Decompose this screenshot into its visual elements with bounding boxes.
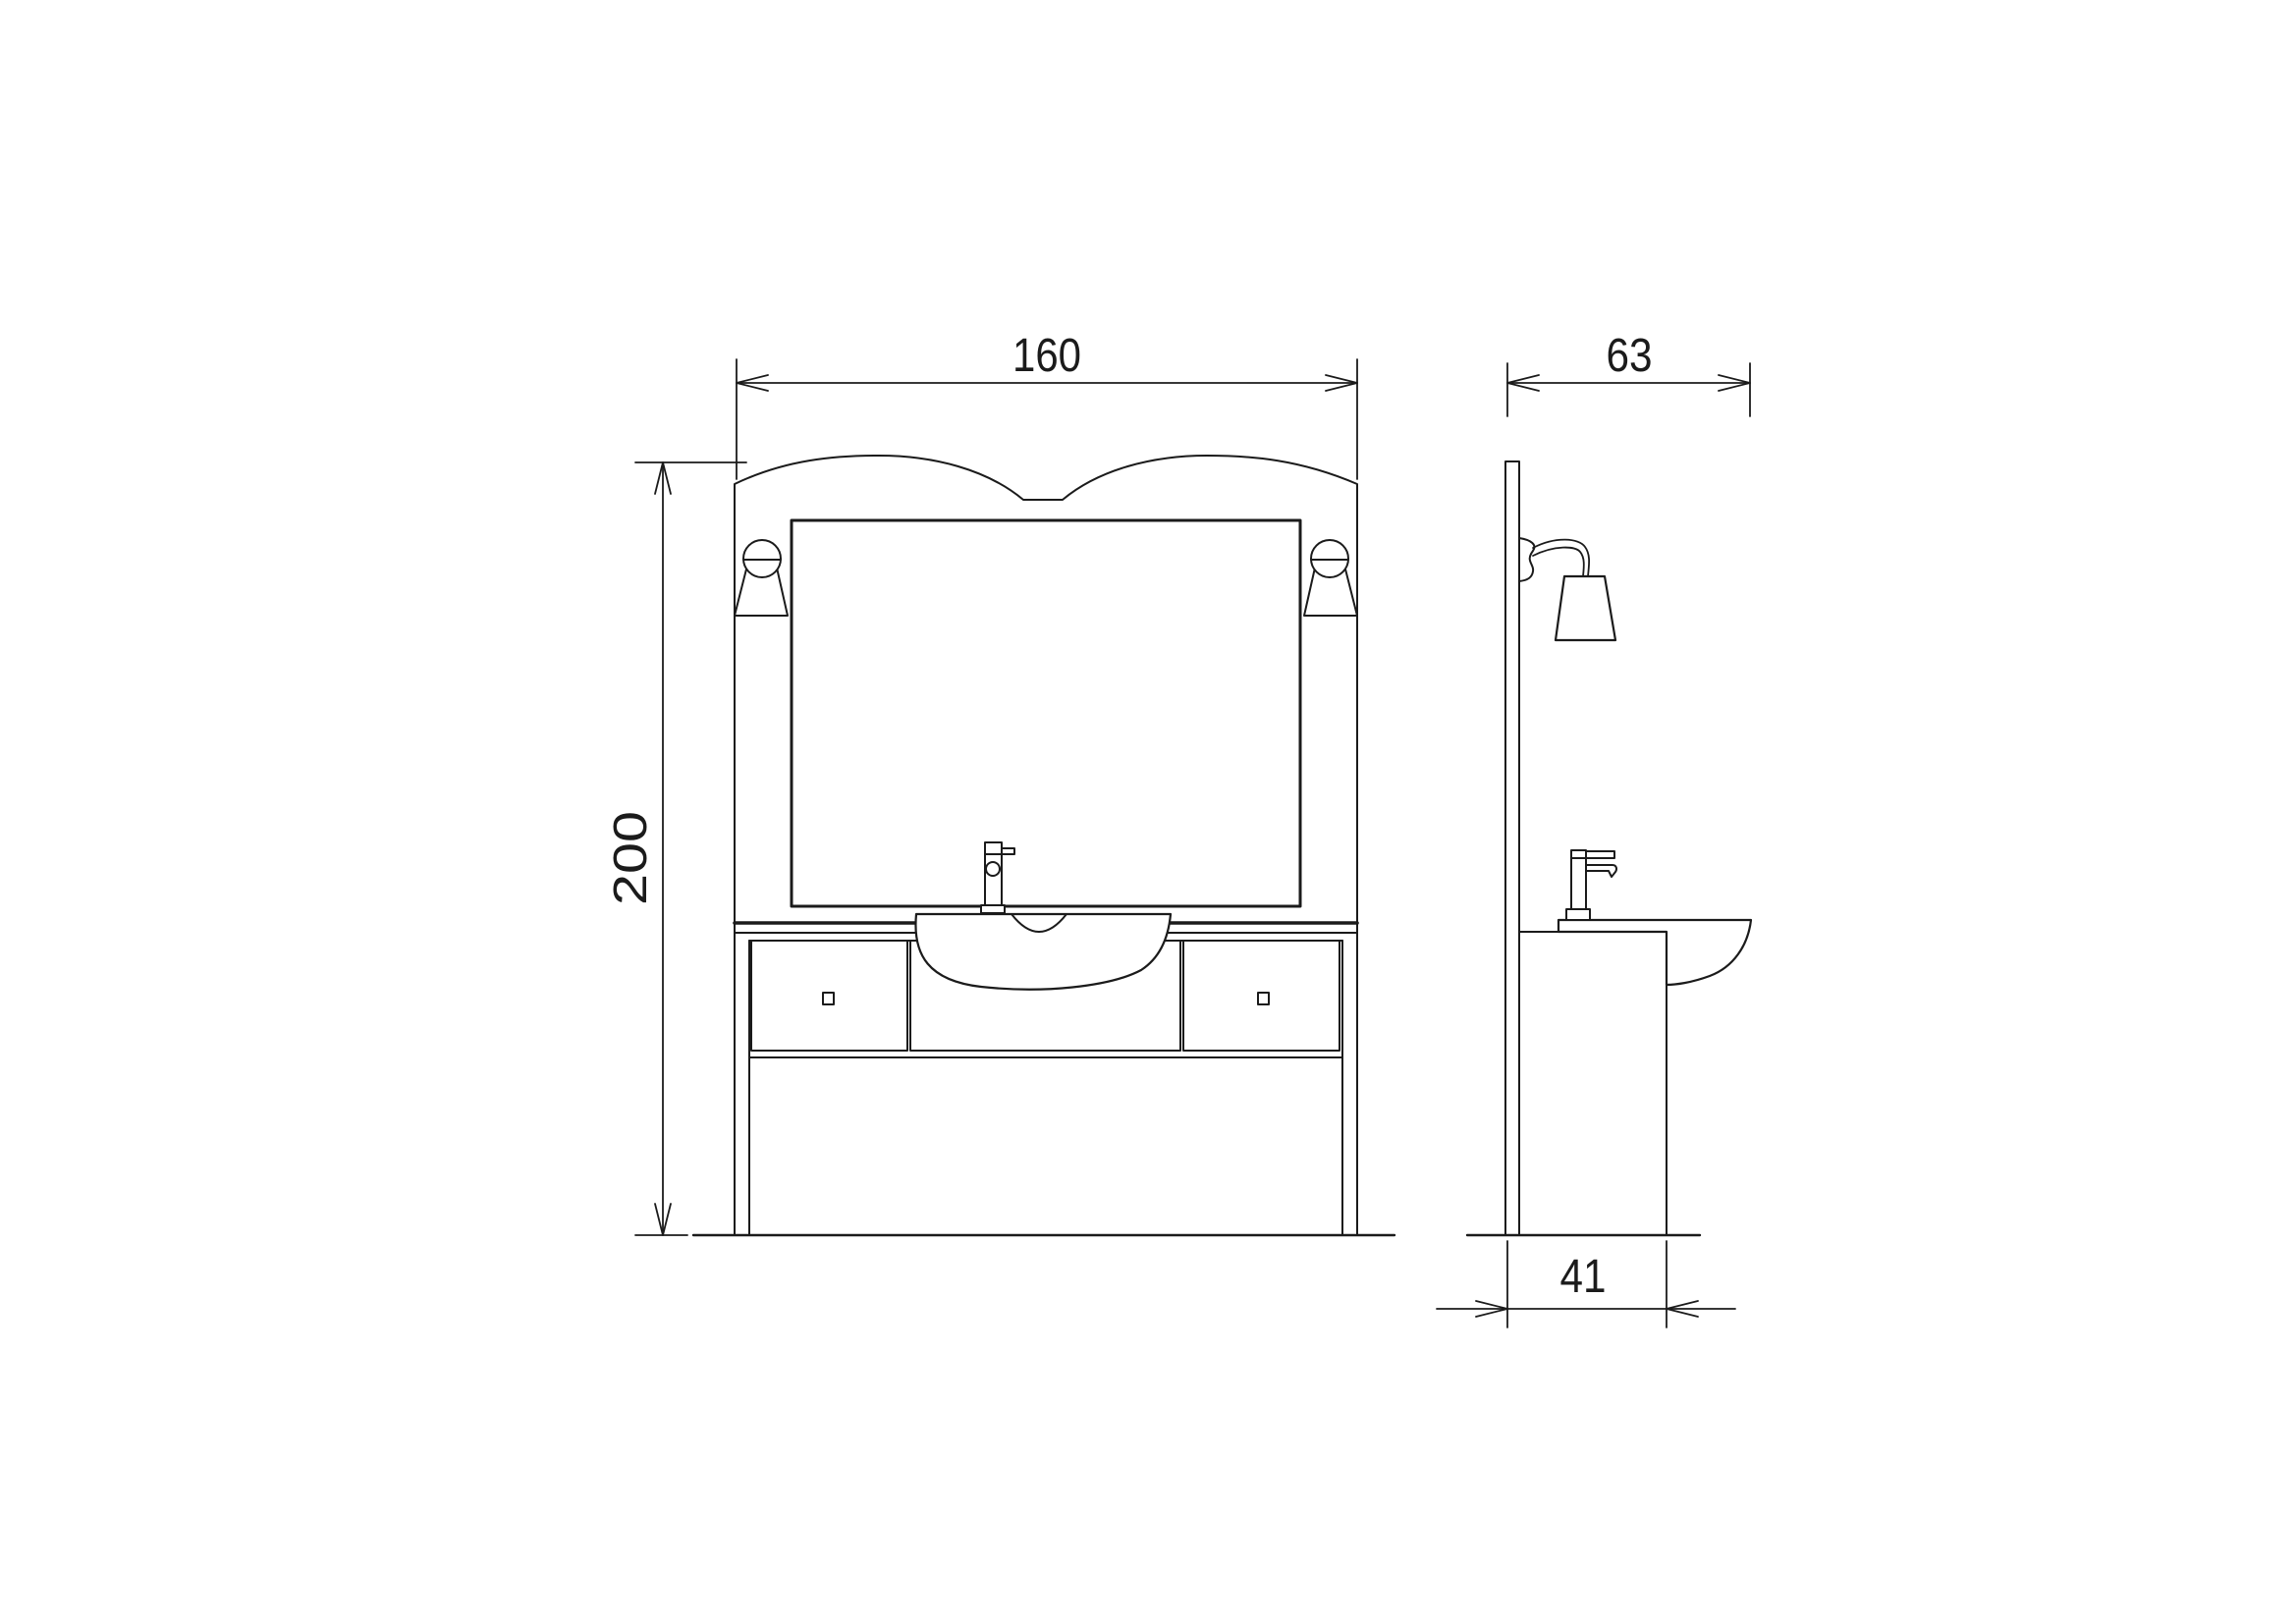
- dimension-front-width-label: 160: [1012, 330, 1081, 382]
- side-wall-lamp: [1519, 538, 1615, 640]
- side-basin-profile: [1558, 920, 1751, 985]
- side-wall-panel: [1505, 461, 1519, 1235]
- dimension-overall-height: 200: [605, 462, 746, 1235]
- dimension-overall-height-label: 200: [605, 811, 657, 905]
- side-lamp-arm-outer: [1533, 540, 1589, 576]
- faucet-side: [1566, 850, 1616, 920]
- dimension-cabinet-depth: 41: [1437, 1241, 1735, 1327]
- side-lamp-shade: [1556, 576, 1615, 640]
- side-lamp-bracket: [1519, 538, 1534, 581]
- side-faucet-lever: [1586, 851, 1614, 858]
- side-view: [1467, 461, 1751, 1235]
- faucet-base: [981, 905, 1005, 913]
- dimension-cabinet-depth-label: 41: [1560, 1251, 1607, 1303]
- arched-back-panel: [735, 456, 1357, 1235]
- side-faucet-spout: [1586, 865, 1616, 877]
- dimension-side-depth-label: 63: [1607, 330, 1653, 382]
- technical-drawing: 160 63 200 41: [0, 0, 2296, 1623]
- drawing-canvas: 160 63 200 41: [0, 0, 2296, 1623]
- faucet-pivot: [986, 862, 1000, 876]
- front-view: [693, 456, 1394, 1235]
- side-lamp-arm-inner: [1533, 548, 1584, 576]
- dimension-side-depth: 63: [1507, 330, 1750, 416]
- side-faucet-base: [1566, 909, 1590, 920]
- faucet-lever: [1002, 848, 1014, 854]
- dimension-front-width: 160: [737, 330, 1357, 479]
